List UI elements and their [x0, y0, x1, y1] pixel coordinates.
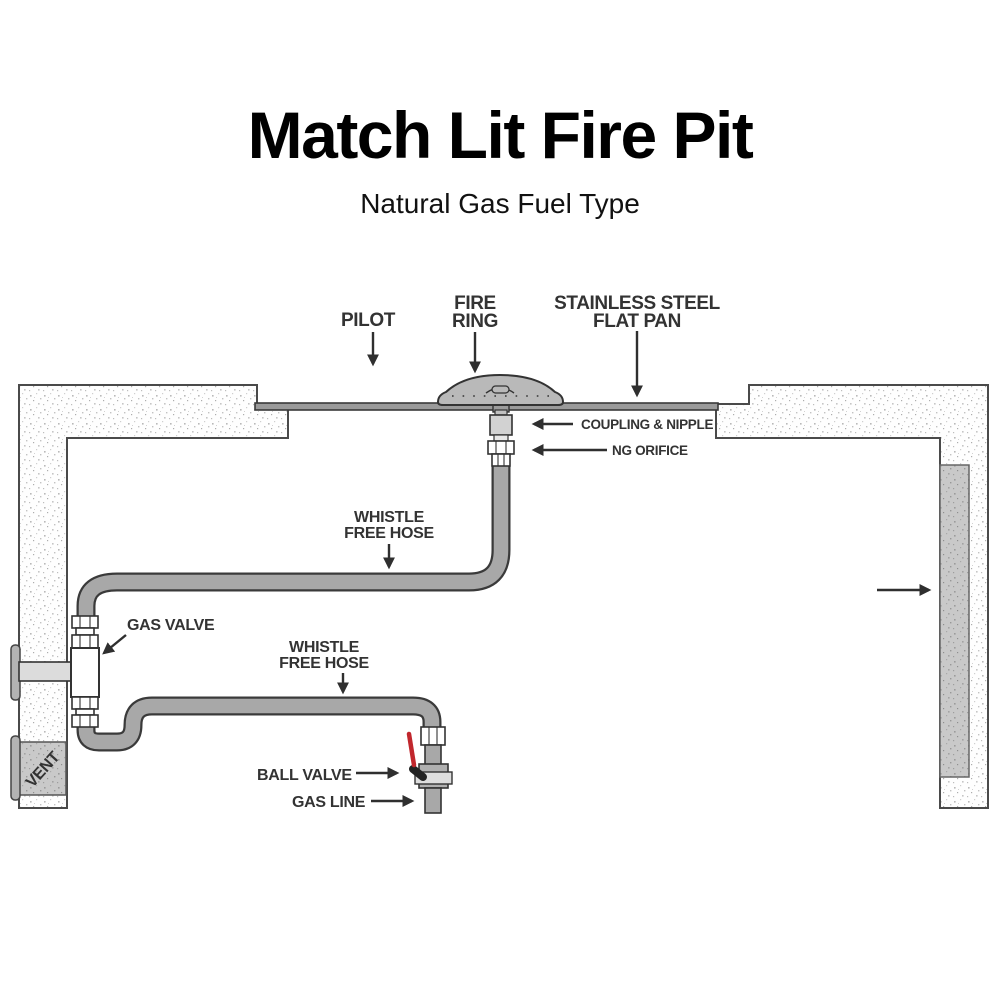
label-whistle-hose-upper-line2: FREE HOSE [344, 525, 434, 542]
gas-valve-body [71, 648, 99, 697]
valve-key [19, 662, 71, 681]
gas-valve-arrow [104, 635, 126, 653]
label-ball-valve: BALL VALVE [257, 767, 352, 784]
diagram-canvas: PILOT FIRE RING STAINLESS STEEL FLAT PAN… [0, 0, 1000, 1000]
label-ng-orifice: NG ORIFICE [612, 443, 688, 458]
fire-ring [438, 375, 563, 405]
right-wall-liner-strip [940, 465, 969, 777]
whistle-free-hose-lower [86, 706, 432, 742]
label-whistle-hose-upper-line1: WHISTLE [354, 509, 425, 526]
label-flat-pan-line2: FLAT PAN [593, 311, 681, 332]
vent-cap [11, 736, 20, 800]
valve-bottom-fitting [72, 697, 98, 727]
whistle-free-hose-upper [86, 466, 501, 616]
label-coupling-nipple: COUPLING & NIPPLE [581, 417, 713, 432]
ball-valve-assembly [409, 727, 452, 813]
ball-valve-stem-pipe [425, 745, 441, 766]
label-gas-valve: GAS VALVE [127, 617, 215, 634]
label-gas-line: GAS LINE [292, 794, 366, 811]
label-whistle-hose-lower-line1: WHISTLE [289, 639, 360, 656]
ball-valve-red-handle [409, 734, 414, 765]
ball-valve-top-fitting [421, 727, 445, 745]
valve-top-fitting [72, 616, 98, 648]
label-pilot: PILOT [341, 310, 396, 331]
ng-orifice-fitting [488, 435, 514, 466]
gas-line-pipe [425, 788, 441, 813]
label-whistle-hose-lower-line2: FREE HOSE [279, 655, 369, 672]
label-fire-ring-line2: RING [452, 311, 498, 332]
fire-pit-diagram-page: Match Lit Fire Pit Natural Gas Fuel Type [0, 0, 1000, 1000]
